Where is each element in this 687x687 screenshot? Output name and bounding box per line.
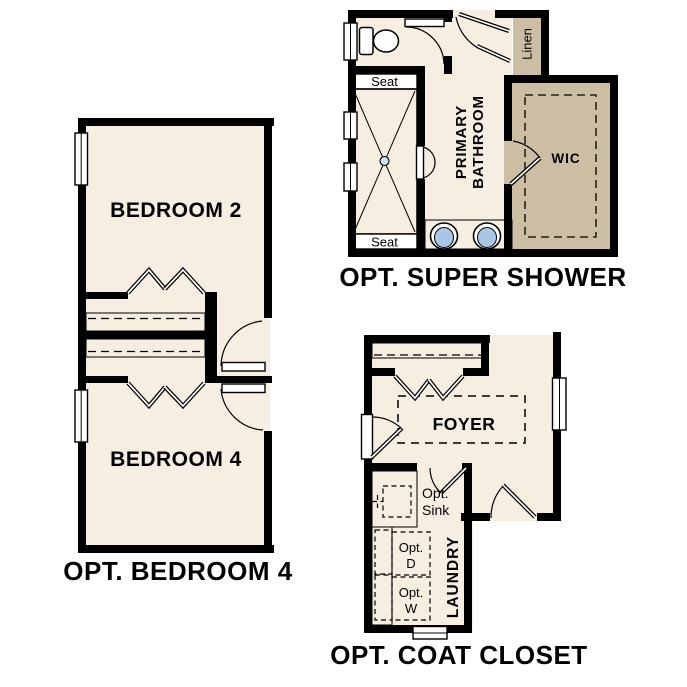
seat-top-label: Seat [371, 74, 398, 89]
opt-sink-label-line2: Sink [422, 502, 450, 518]
wic-shelving [504, 75, 618, 257]
bedroom2-label: BEDROOM 2 [110, 199, 242, 222]
plan-coat-closet: FOYER Opt. Sink Opt. D Opt. W LAUNDRY OP… [330, 332, 587, 670]
caption-bedroom4: OPT. BEDROOM 4 [63, 556, 293, 586]
linen-label: Linen [520, 28, 535, 60]
opt-dryer-label-line1: Opt. [399, 540, 424, 555]
opt-dryer-label-line2: D [406, 556, 415, 571]
sink-basin [478, 228, 497, 248]
laundry-label: LAUNDRY [445, 536, 462, 618]
door-panel [405, 19, 444, 27]
caption-super-shower: OPT. SUPER SHOWER [339, 262, 626, 292]
seat-bottom-label: Seat [371, 235, 398, 250]
primary-bathroom-label-line2: BATHROOM [470, 95, 487, 189]
shower-drain-icon [380, 157, 389, 166]
toilet-icon [360, 28, 399, 55]
entry-door-jamb [362, 415, 373, 460]
bedroom4-label: BEDROOM 4 [110, 448, 242, 471]
foyer-label: FOYER [433, 414, 496, 434]
opt-sink-label-line1: Opt. [422, 485, 448, 501]
wic-label: WIC [551, 151, 580, 166]
floor-plan-canvas: Seat Seat PRIMARY BATHROOM Linen WIC OPT… [0, 0, 687, 687]
opt-washer-label-line1: Opt. [399, 585, 424, 600]
sink-basin [435, 228, 454, 248]
door-panel [222, 363, 265, 372]
floor-plan-svg: Seat Seat PRIMARY BATHROOM Linen WIC OPT… [0, 0, 687, 687]
caption-coat-closet: OPT. COAT CLOSET [330, 640, 587, 670]
plan-super-shower: Seat Seat PRIMARY BATHROOM Linen WIC OPT… [339, 10, 626, 292]
opt-washer-label-line2: W [405, 601, 418, 616]
plan-bedroom4: BEDROOM 2 BEDROOM 4 OPT. BEDROOM 4 [63, 118, 293, 586]
primary-bathroom-label-line1: PRIMARY [453, 105, 470, 179]
door-panel [222, 384, 265, 393]
shower-door-panel [417, 146, 424, 179]
